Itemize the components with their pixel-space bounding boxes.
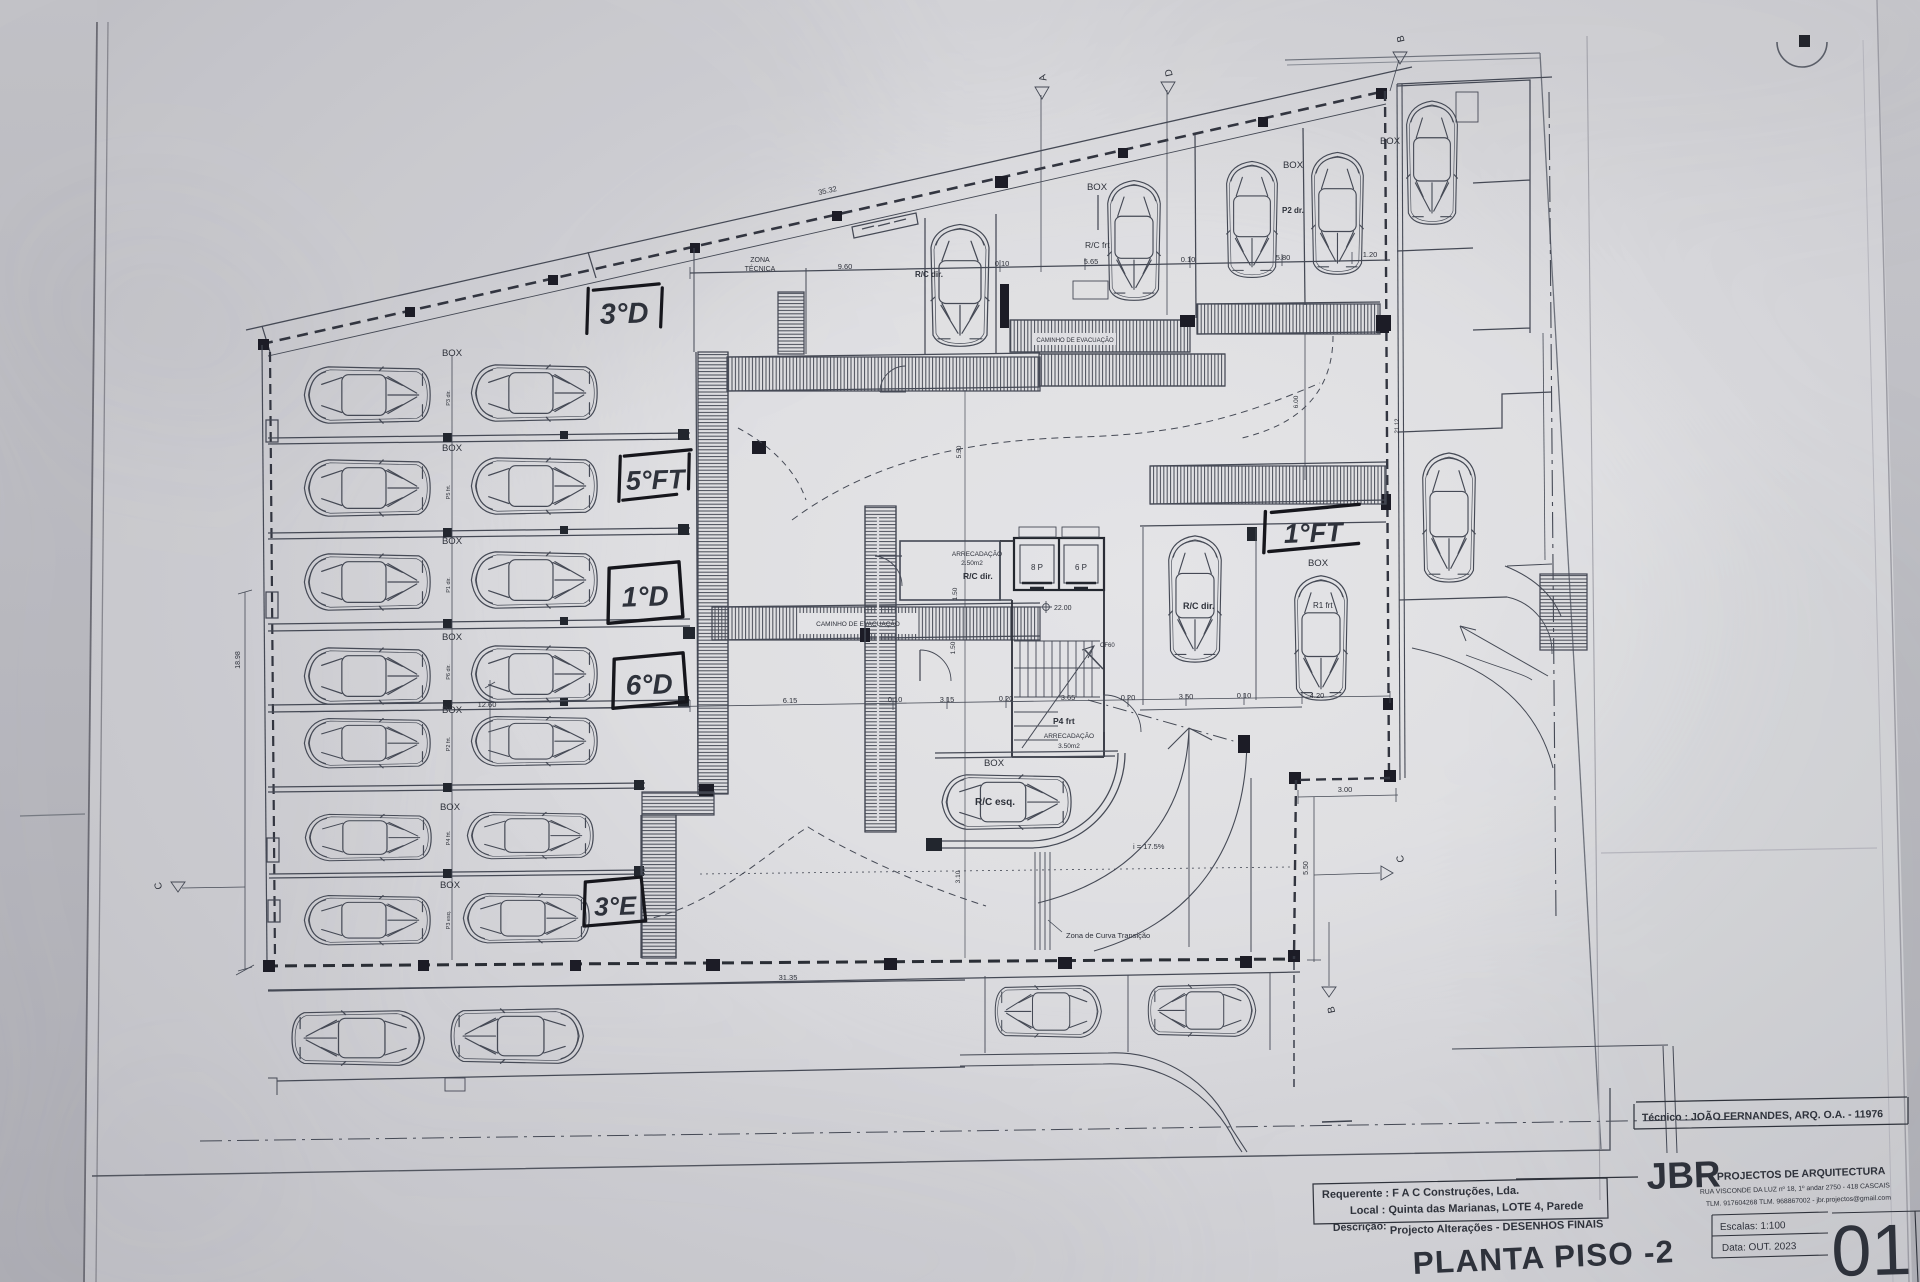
svg-text:6°D: 6°D bbox=[625, 668, 673, 701]
svg-text:5.50: 5.50 bbox=[1303, 861, 1310, 875]
svg-text:BOX: BOX bbox=[442, 348, 463, 359]
svg-text:3.65: 3.65 bbox=[1061, 693, 1076, 702]
svg-text:1.50: 1.50 bbox=[952, 587, 959, 600]
svg-text:5°FT: 5°FT bbox=[625, 464, 687, 496]
svg-text:BOX: BOX bbox=[442, 632, 463, 643]
svg-text:ZONA: ZONA bbox=[750, 257, 770, 264]
svg-text:6.15: 6.15 bbox=[783, 696, 798, 705]
svg-text:P3 esq.: P3 esq. bbox=[446, 910, 452, 929]
svg-text:0.10: 0.10 bbox=[1181, 255, 1196, 264]
svg-text:BOX: BOX bbox=[442, 536, 463, 547]
svg-text:0.10: 0.10 bbox=[888, 695, 903, 704]
svg-text:22.00: 22.00 bbox=[1054, 605, 1072, 612]
svg-text:5.50: 5.50 bbox=[956, 445, 963, 458]
svg-text:i = 17.5%: i = 17.5% bbox=[1133, 842, 1165, 851]
svg-text:BOX: BOX bbox=[1283, 160, 1304, 171]
svg-text:6 P: 6 P bbox=[1075, 563, 1087, 572]
svg-text:R/C dir.: R/C dir. bbox=[915, 270, 943, 279]
svg-text:BOX: BOX bbox=[984, 758, 1005, 769]
svg-text:1.50: 1.50 bbox=[950, 641, 957, 654]
svg-text:31.35: 31.35 bbox=[779, 973, 798, 982]
svg-text:4.20: 4.20 bbox=[1310, 691, 1325, 700]
svg-text:CAMINHO DE EVACUAÇÃO: CAMINHO DE EVACUAÇÃO bbox=[816, 619, 900, 628]
svg-text:R/C esq.: R/C esq. bbox=[975, 797, 1015, 808]
svg-text:P2 dr.: P2 dr. bbox=[1282, 206, 1304, 215]
svg-text:ARRECADAÇÃO: ARRECADAÇÃO bbox=[1044, 731, 1094, 740]
svg-text:R1 frt: R1 frt bbox=[1313, 601, 1333, 610]
svg-text:21.12: 21.12 bbox=[1395, 418, 1401, 434]
svg-text:5.80: 5.80 bbox=[1276, 253, 1291, 262]
svg-text:01: 01 bbox=[1830, 1210, 1912, 1282]
svg-text:1°D: 1°D bbox=[621, 580, 669, 613]
svg-text:P4 frt.: P4 frt. bbox=[446, 830, 452, 845]
svg-text:R/C dir.: R/C dir. bbox=[963, 571, 993, 581]
svg-text:R/C frt: R/C frt bbox=[1085, 240, 1110, 250]
svg-text:BOX: BOX bbox=[1087, 182, 1108, 193]
svg-text:Zona de Curva Transição: Zona de Curva Transição bbox=[1066, 931, 1150, 940]
svg-text:3.50: 3.50 bbox=[1179, 692, 1194, 701]
svg-text:3.10: 3.10 bbox=[955, 870, 962, 883]
svg-text:1°FT: 1°FT bbox=[1283, 517, 1345, 549]
svg-text:P6 dir.: P6 dir. bbox=[446, 664, 452, 680]
svg-text:P3 dir.: P3 dir. bbox=[446, 390, 452, 406]
svg-text:3.50m2: 3.50m2 bbox=[1058, 743, 1080, 750]
svg-text:P4 frt: P4 frt bbox=[1053, 716, 1075, 726]
svg-text:Escalas: 1:100: Escalas: 1:100 bbox=[1720, 1220, 1786, 1233]
svg-text:CF60: CF60 bbox=[1100, 643, 1115, 649]
svg-text:2.50m2: 2.50m2 bbox=[961, 560, 983, 567]
svg-text:Data: OUT. 2023: Data: OUT. 2023 bbox=[1722, 1241, 1797, 1254]
svg-text:BOX: BOX bbox=[1380, 136, 1401, 147]
svg-text:BOX: BOX bbox=[442, 443, 463, 454]
svg-text:0.20: 0.20 bbox=[999, 694, 1014, 703]
svg-text:BOX: BOX bbox=[440, 880, 461, 891]
svg-text:3°E: 3°E bbox=[594, 890, 638, 921]
svg-text:BOX: BOX bbox=[442, 705, 463, 716]
svg-text:P5 frt.: P5 frt. bbox=[446, 484, 452, 499]
svg-text:0.20: 0.20 bbox=[1121, 693, 1136, 702]
svg-text:P2 frt.: P2 frt. bbox=[446, 736, 452, 751]
svg-text:12.60: 12.60 bbox=[478, 700, 497, 709]
svg-text:CAMINHO DE EVACUAÇÃO: CAMINHO DE EVACUAÇÃO bbox=[1036, 337, 1114, 344]
svg-text:1.20: 1.20 bbox=[1363, 250, 1378, 259]
svg-text:P1 dir.: P1 dir. bbox=[446, 577, 452, 593]
svg-text:Descrição:: Descrição: bbox=[1333, 1220, 1387, 1234]
svg-text:3.15: 3.15 bbox=[940, 695, 955, 704]
svg-text:BOX: BOX bbox=[1308, 558, 1329, 569]
svg-text:R/C dir.: R/C dir. bbox=[1183, 601, 1215, 611]
svg-text:0.10: 0.10 bbox=[995, 259, 1010, 268]
svg-text:3°D: 3°D bbox=[599, 297, 649, 331]
svg-text:8 P: 8 P bbox=[1031, 563, 1043, 572]
svg-text:TÉCNICA: TÉCNICA bbox=[745, 264, 776, 273]
svg-text:ARRECADAÇÃO: ARRECADAÇÃO bbox=[952, 549, 1002, 558]
svg-text:6.00: 6.00 bbox=[1293, 395, 1300, 408]
svg-text:3.00: 3.00 bbox=[1338, 785, 1353, 794]
svg-text:5.65: 5.65 bbox=[1084, 257, 1099, 266]
svg-text:0.10: 0.10 bbox=[1237, 691, 1252, 700]
svg-text:9.60: 9.60 bbox=[838, 262, 853, 271]
svg-text:BOX: BOX bbox=[440, 802, 461, 813]
svg-text:18.98: 18.98 bbox=[235, 651, 242, 669]
